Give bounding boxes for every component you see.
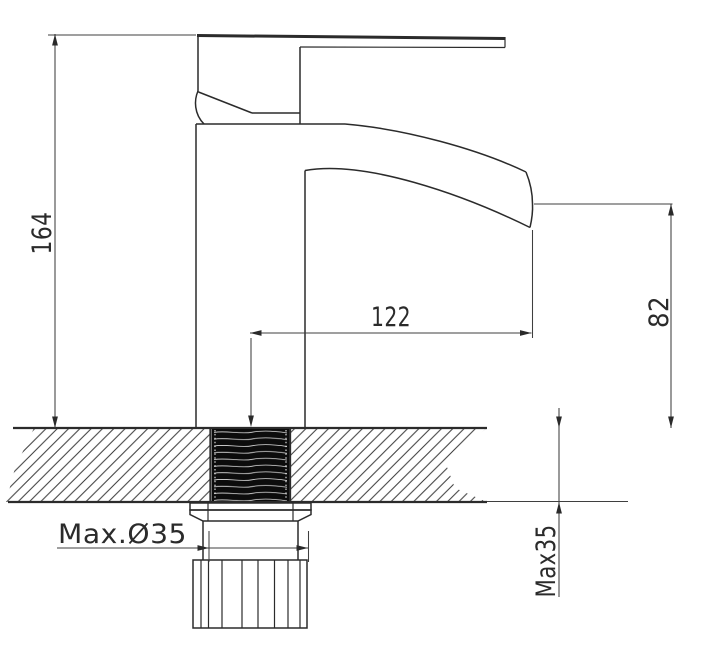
dim-label-overall-height: 164 xyxy=(27,212,58,255)
dim-82-arrow-up xyxy=(668,204,674,216)
dim-deck-thickness: Max35 xyxy=(487,408,628,598)
dim-122-centerline-arrow xyxy=(248,416,254,428)
dim-label-outlet-height: 82 xyxy=(644,296,675,328)
castellated-nut xyxy=(193,560,307,628)
tap-spout-outlet-face xyxy=(530,204,533,228)
technical-drawing-svg: 164 122 82 Max35 Max.Ø35 xyxy=(0,0,701,654)
castellated-nut-outline xyxy=(193,560,307,628)
tap-spout-top-curve xyxy=(345,124,526,172)
dim-label-deck-thickness: Max35 xyxy=(531,525,562,598)
dim-122-arrow-left xyxy=(250,330,262,336)
dim-max35-arrow-down xyxy=(556,417,562,429)
dim-spout-reach: 122 xyxy=(248,230,532,427)
dim-82-arrow-down xyxy=(668,417,674,429)
tap-head-front-arc xyxy=(196,91,204,124)
dim-overall-height: 164 xyxy=(27,34,196,428)
dim-122-arrow-right xyxy=(520,330,532,336)
threaded-shank-body xyxy=(212,429,289,501)
tap-outline xyxy=(196,36,533,429)
dim-dia35-arrow-right xyxy=(297,545,309,551)
tap-spout-bottom-curve xyxy=(305,169,530,228)
dim-164-arrow-down xyxy=(52,417,58,429)
mounting-assembly xyxy=(190,503,311,628)
countertop-hatch-left xyxy=(6,428,211,502)
tap-lever-top xyxy=(197,36,505,39)
tap-lever-bottom xyxy=(300,47,505,48)
countertop-hatch-right xyxy=(290,428,487,502)
tap-spout-tip-face xyxy=(526,172,533,204)
dim-max35-arrow-up xyxy=(556,502,562,514)
dim-outlet-height: 82 xyxy=(534,204,675,428)
castellated-nut-slots xyxy=(201,560,300,628)
dim-hole-diameter: Max.Ø35 xyxy=(57,519,309,562)
technical-drawing-canvas: 164 122 82 Max35 Max.Ø35 xyxy=(0,0,701,654)
tap-head-chamfer xyxy=(199,92,253,113)
threaded-shank xyxy=(212,429,289,501)
dim-label-hole-diameter: Max.Ø35 xyxy=(58,519,187,550)
dim-label-spout-reach: 122 xyxy=(371,302,411,333)
dim-164-arrow-up xyxy=(52,34,58,46)
